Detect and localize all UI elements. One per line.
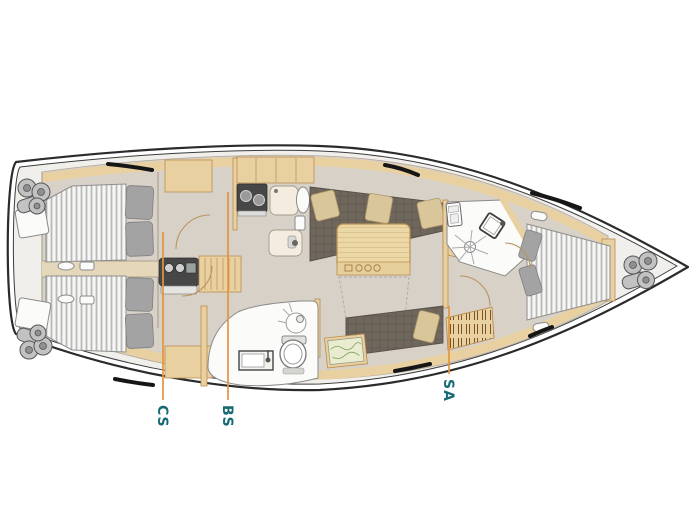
- burner: [241, 191, 252, 202]
- vent: [80, 262, 94, 270]
- fwd-toilet: [446, 202, 462, 226]
- double-berth: [46, 184, 126, 262]
- pillow: [125, 278, 153, 312]
- engine-grill: [186, 263, 196, 273]
- overhead-lockers: [236, 157, 314, 183]
- cushion: [417, 198, 446, 229]
- galley-sink: [297, 187, 310, 213]
- head-sink-basin: [242, 354, 264, 367]
- toilet-base: [283, 368, 304, 374]
- callout-label-cs: CS: [154, 405, 170, 428]
- engine-dial: [165, 264, 174, 273]
- stove-rail: [238, 211, 266, 216]
- head-wall: [201, 306, 207, 386]
- burner: [254, 195, 265, 206]
- shower-head: [286, 313, 306, 333]
- floorplan-canvas: CS BS SA: [0, 0, 696, 513]
- galley-bulkhead: [233, 158, 237, 230]
- vent: [80, 296, 94, 304]
- handrail: [115, 379, 153, 385]
- double-berth: [46, 276, 126, 352]
- pillow: [125, 185, 154, 219]
- callout-label-sa: SA: [440, 379, 456, 402]
- pillow: [125, 313, 154, 348]
- chart-map: [328, 337, 364, 364]
- yacht-floorplan: CS BS SA: [0, 0, 696, 513]
- engine-tray: [161, 286, 197, 294]
- vent: [58, 295, 74, 303]
- drain: [274, 189, 278, 193]
- pillow: [125, 222, 153, 257]
- shower-rose: [297, 316, 304, 323]
- chart-table: [324, 334, 367, 368]
- faucet: [292, 240, 298, 246]
- callout-label-bs: BS: [219, 405, 235, 428]
- vent: [58, 262, 74, 270]
- engine-dial: [176, 264, 185, 273]
- hanging-locker: [165, 160, 212, 192]
- tray: [295, 216, 305, 230]
- cushion: [365, 193, 393, 224]
